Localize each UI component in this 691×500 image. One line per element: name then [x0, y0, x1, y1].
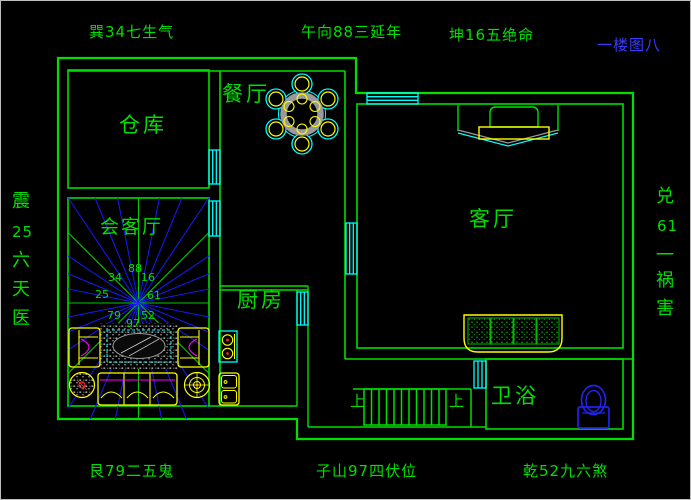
dining-table-set: [266, 74, 338, 154]
window-reception-dining: [209, 201, 220, 236]
room-label-kitchen: 厨房: [237, 290, 285, 311]
room-label-reception: 会客厅: [100, 218, 163, 237]
room-label-dining: 餐厅: [222, 84, 270, 105]
kitchen-sink: [219, 373, 239, 405]
reception-sofa: [98, 373, 177, 405]
window-living-top: [367, 93, 418, 104]
compass-number-e: 25: [95, 289, 109, 300]
room-label-storeroom: 仓库: [119, 115, 167, 136]
sheet-title: 一楼图八: [597, 38, 661, 53]
windows-and-doors: [209, 93, 486, 388]
side-table-plant-left: [70, 373, 95, 398]
window-kitchen-corridor: [297, 292, 308, 325]
living-room-sofa: [464, 315, 562, 352]
side-table-plant-right: [185, 373, 210, 398]
compass-number-nw: 52: [141, 310, 155, 321]
perimeter-label-bottom-center: 子山97四伏位: [316, 464, 417, 479]
room-label-living: 客厅: [469, 209, 517, 230]
tv-icon: [490, 107, 538, 127]
perimeter-label-top-left: 巽34七生气: [89, 25, 174, 40]
door-bathroom: [474, 361, 486, 388]
perimeter-label-bottom-left: 艮79二五鬼: [89, 464, 174, 479]
compass-number-ne: 79: [107, 310, 121, 321]
stairs-body: [364, 389, 446, 425]
tv-stand: [479, 127, 549, 139]
kitchen-stove: [219, 331, 237, 362]
compass-number-sw: 16: [141, 272, 155, 283]
window-living-left: [346, 223, 357, 274]
floorplan-drawing: [1, 1, 691, 500]
toilet-icon: [578, 386, 609, 429]
armchair-left: [69, 328, 100, 367]
compass-number-se: 34: [108, 272, 122, 283]
room-label-bathroom: 卫浴: [491, 386, 539, 407]
compass-number-w: 61: [147, 290, 161, 301]
compass-number-n: 97: [126, 318, 140, 329]
tv-nook: [458, 105, 558, 146]
dining-chairs: [266, 74, 338, 154]
perimeter-label-top-center: 午向88三延年: [301, 25, 402, 40]
cad-floorplan-viewport: 巽34七生气 午向88三延年 坤16五绝命 一楼图八 艮79二五鬼 子山97四伏…: [0, 0, 691, 500]
stairs-up-label-right: 上: [449, 394, 465, 409]
stairs-up-label-left: 上: [350, 394, 366, 409]
perimeter-label-bottom-right: 乾52九六煞: [523, 464, 608, 479]
perimeter-label-top-right: 坤16五绝命: [449, 28, 534, 43]
compass-number-s: 88: [128, 263, 142, 274]
window-storeroom-dining: [209, 150, 220, 184]
